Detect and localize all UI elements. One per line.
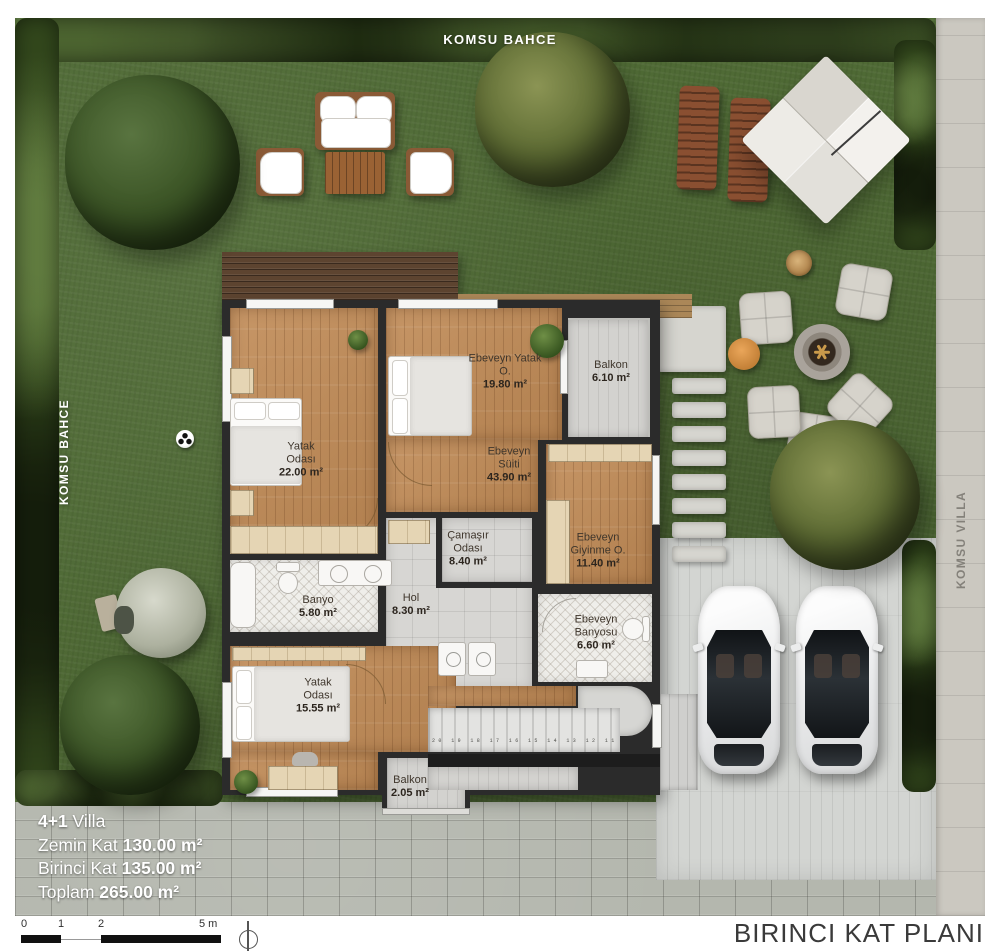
room-area: 8.40 m² [438,556,498,569]
room-area: 6.10 m² [580,372,642,385]
scale-bar: 0 1 2 5 m [21,918,291,948]
toilet [276,562,300,572]
stepping-stone [672,498,726,514]
window [652,455,660,525]
stepping-stone [672,546,726,562]
info-line: Zemin Kat 130.00 m² [38,834,202,858]
soccer-ball [176,430,194,448]
neighbor-label-top: KOMSU BAHCE [300,32,700,47]
car-seat [814,654,832,678]
room-area: 15.55 m² [290,703,346,716]
window [246,299,334,309]
balkon-2-railing [382,808,470,815]
entry-porch [660,694,698,790]
room-label: Ebeveyn Yatak O. 19.80 m² [467,353,543,392]
window [398,299,498,309]
stepping-stone [672,426,726,442]
armchair-cushion [260,152,302,194]
toilet-bowl [278,572,298,594]
camasir-wall-bottom [436,582,532,588]
stairs-beam [428,754,660,767]
room-label: Çamaşır Odası 8.40 m² [438,530,498,569]
bathtub [230,562,256,628]
room-area: 43.90 m² [476,472,542,485]
room-label: Balkon 2.05 m² [379,774,441,800]
car [698,586,780,774]
room-label: Banyo 5.80 m² [288,594,348,620]
stepping-stone [672,474,726,490]
info-line: Toplam 265.00 m² [38,881,202,905]
tree [65,75,240,250]
room-area: 11.40 m² [558,558,638,571]
neighbor-label-left: KOMSU BAHCE [57,399,71,505]
hedge-left [15,18,59,804]
room-name: Yatak Odası [286,441,315,466]
nightstand [230,490,254,516]
stepping-stone [672,522,726,538]
room-label: Ebeveyn Banyosu 6.60 m² [561,614,631,653]
neighbor-sidewalk [936,18,985,916]
plant [348,330,368,350]
pillow [236,670,252,704]
room-name: Ebeveyn Banyosu [575,614,618,639]
dome-tent [116,568,206,658]
floor-plan-canvas: 20 19 18 17 16 15 14 13 12 11 10 9 8 7 6… [0,0,1000,952]
room-area: 22.00 m² [273,467,329,480]
tree [60,655,200,795]
pillow [234,402,266,420]
dryer-door-icon [476,652,491,667]
desk [268,766,338,790]
scale-tick: 1 [58,918,64,930]
hedge-driveway [902,540,936,792]
tent-opening [114,606,134,634]
car [796,586,878,774]
villa-info-block: 4+1 Villa Zemin Kat 130.00 m² Birinci Ka… [38,810,202,904]
car-seat [744,654,762,678]
sun-lounger [676,85,720,190]
scale-segment [101,935,221,943]
window [222,682,232,758]
car-glass-roof [707,630,771,738]
car-glass-roof [805,630,869,738]
room-area: 19.80 m² [467,379,543,392]
info-line: Birinci Kat 135.00 m² [38,857,202,881]
washer-door-icon [446,652,461,667]
room-label: Hol 8.30 m² [383,592,439,618]
room-label: Balkon 6.10 m² [580,359,642,385]
tree [475,32,630,187]
stepping-stone [672,378,726,394]
armchair-cushion [410,152,452,194]
wardrobe [232,647,366,661]
room-name: Ebeveyn Yatak O. [469,353,542,378]
room-area: 8.30 m² [383,605,439,618]
pillow [392,360,408,396]
neighbor-label-right: KOMSU VILLA [954,491,968,589]
room-area: 6.60 m² [561,640,631,653]
room-label: Ebeveyn Süiti 43.90 m² [476,446,542,485]
car-seat [716,654,734,678]
pillow [392,398,408,434]
room-name: Ebeveyn Süiti [488,446,531,471]
scale-segment [21,935,61,943]
car-seat [842,654,860,678]
nightstand [230,368,254,394]
room-label: Ebeveyn Giyinme O. 11.40 m² [558,532,638,571]
orange-stool [728,338,760,370]
tree [770,420,920,570]
room-name: Çamaşır Odası [447,530,489,555]
coffee-table [325,152,385,194]
sofa-seat [321,118,391,148]
room-name: Ebeveyn Giyinme O. [570,532,625,557]
sink [576,660,608,678]
stairs-underpass [428,767,578,790]
room-area: 5.80 m² [288,607,348,620]
room-name: Balkon [393,774,427,786]
fire-pit [794,324,850,380]
room-name: Balkon [594,359,628,371]
sink-basin-icon [364,565,382,583]
scale-tick: 2 [98,918,104,930]
room-area: 2.05 m² [379,787,441,800]
cabinet [388,520,430,544]
floor-cushion [747,385,802,440]
room-label: Yatak Odası 15.55 m² [290,677,346,716]
floor-cushion [834,262,894,322]
wood-stump-seat [786,250,812,276]
scale-segment [61,939,101,941]
north-arrow-line [247,921,249,951]
plan-title: BIRINCI KAT PLANI [734,918,984,949]
desk-chair [292,752,318,766]
info-line: 4+1 Villa [38,810,202,834]
scale-tick: 0 [21,918,27,930]
blanket [410,357,471,435]
pillow [236,706,252,740]
stair-step-numbers: 20 19 18 17 16 15 14 13 12 11 10 9 8 7 6… [432,738,620,746]
wardrobe [230,526,378,554]
plant [234,770,258,794]
room-name: Banyo [302,594,333,606]
sink-basin-icon [330,565,348,583]
scale-tick: 5 m [199,918,217,930]
stairs-landing [428,686,576,706]
entry-door [652,704,662,748]
stepping-stone [672,402,726,418]
car-rear-window [714,744,764,766]
car-rear-window [812,744,862,766]
stepping-stone [672,450,726,466]
room-label: Yatak Odası 22.00 m² [273,441,329,480]
room-name: Yatak Odası [303,677,332,702]
closet [548,444,652,462]
room-name: Hol [403,592,420,604]
pillow [268,402,300,420]
